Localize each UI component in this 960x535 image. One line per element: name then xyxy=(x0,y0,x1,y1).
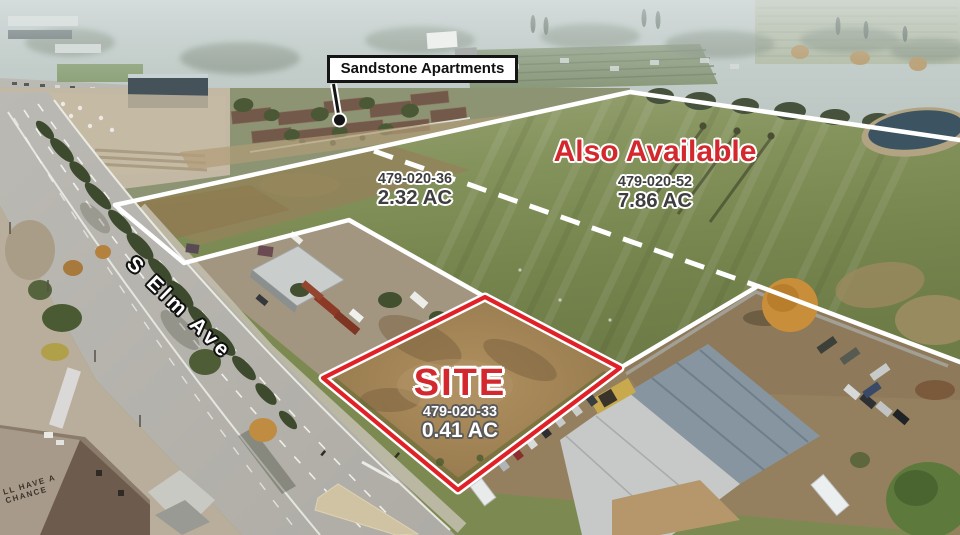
parcel-52-apn: 479-020-52 xyxy=(580,175,730,190)
site-apn: 479-020-33 xyxy=(385,405,535,420)
site-label: SITE xyxy=(385,364,535,404)
parcel-52-acres: 7.86 AC xyxy=(580,190,730,211)
callout-box-sandstone: Sandstone Apartments xyxy=(327,55,518,83)
parcel-36-apn: 479-020-36 xyxy=(340,172,490,187)
site-acres: 0.41 AC xyxy=(385,420,535,442)
aerial-listing-image: Sandstone Apartments Also Available 479-… xyxy=(0,0,960,535)
parcel-36-acres: 2.32 AC xyxy=(340,187,490,208)
also-available-label: Also Available xyxy=(535,136,775,167)
